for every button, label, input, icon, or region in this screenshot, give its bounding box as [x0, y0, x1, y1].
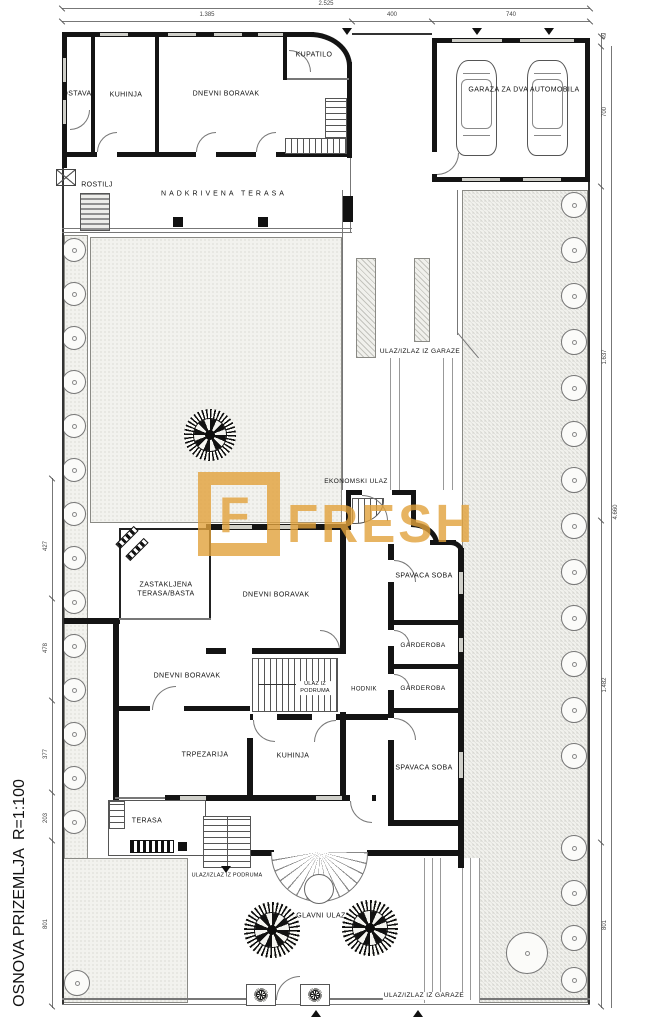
house-wall	[340, 712, 346, 800]
dim-label: 203	[43, 813, 49, 823]
tree-bush	[561, 697, 587, 723]
room-label-dnevni-2: DNEVNI BORAVAK	[154, 673, 221, 682]
room-label-garderoba-1: GARDEROBA	[400, 642, 445, 650]
terasa-planter-bar	[130, 840, 174, 853]
site-boundary-right	[588, 182, 590, 1004]
dim-label: 49	[602, 33, 608, 40]
gate-marker	[342, 28, 352, 35]
dim-line	[52, 478, 53, 1008]
room-label-zastakljena-terasa: ZASTAKLJENA TERASA/BASTA	[134, 581, 198, 599]
window-gap	[63, 58, 66, 82]
driveway-edge	[342, 190, 343, 490]
garage-door-gap	[452, 39, 502, 42]
site-label-garage-exit-bottom: ULAZ/IZLAZ IZ GARAZE	[383, 992, 465, 1000]
window-line	[115, 797, 165, 799]
dim-label: 1.482	[602, 677, 608, 692]
dim-line	[62, 8, 590, 9]
big-tree	[506, 932, 548, 974]
tree-bush	[62, 810, 86, 834]
guesthouse-partition	[283, 32, 287, 80]
room-label-kuhinja-gh: KUHINJA	[110, 92, 143, 101]
tree-bush	[561, 237, 587, 263]
fresh-logo-letter: F	[219, 486, 250, 544]
dim-label: 1.637	[602, 349, 608, 364]
window-gap	[214, 33, 242, 36]
wing-wall	[394, 708, 458, 713]
kupatilo-wall	[287, 78, 349, 80]
walk-line	[399, 358, 400, 490]
terasa-post	[178, 842, 187, 851]
room-label-garaza: GARAZA ZA DVA AUTOMOBILA	[468, 87, 579, 96]
garden-wall	[64, 618, 120, 624]
room-label-kuhinja: KUHINJA	[277, 753, 310, 762]
guesthouse-rounded-corner	[310, 32, 352, 66]
tree-bush	[62, 590, 86, 614]
dim-line	[62, 21, 590, 22]
tree-bush	[62, 634, 86, 658]
room-label-nadkrivena-terasa: NADKRIVENA TERASA	[161, 191, 287, 200]
window-gap	[462, 178, 500, 181]
door-arc	[350, 801, 372, 823]
door-arc	[196, 132, 216, 152]
room-label-terasa: TERASA	[132, 818, 162, 827]
garage-door-gap	[520, 39, 574, 42]
tree-bush	[62, 370, 86, 394]
dim-label: 801	[602, 920, 608, 930]
grill-strip	[80, 193, 110, 231]
planter-plant-icon	[254, 988, 268, 1002]
walk-line	[443, 358, 444, 490]
site-label-garage-exit-top: ULAZ/IZLAZ IZ GARAZE	[379, 348, 461, 356]
ramp-line	[470, 858, 471, 1000]
wing-wall	[394, 620, 458, 625]
door-gap	[196, 152, 216, 157]
site-boundary-left	[62, 168, 64, 1004]
site-label-glavni-ulaz: GLAVNI ULAZ	[296, 913, 345, 922]
walkway-pad	[414, 258, 430, 342]
tree-bush	[561, 605, 587, 631]
tree-bush	[561, 880, 587, 906]
dim-label: 478	[43, 643, 49, 653]
grill-box	[56, 169, 76, 186]
planter-plant-icon	[308, 988, 322, 1002]
window-line	[119, 618, 211, 620]
door-arc	[152, 686, 176, 710]
tree-bush	[561, 192, 587, 218]
door-arc	[437, 153, 459, 175]
tree-bush	[62, 282, 86, 306]
door-gap	[312, 714, 336, 720]
garage-door-marker	[544, 28, 554, 35]
fresh-logo-icon: F	[198, 472, 280, 556]
wing-wall	[394, 664, 458, 669]
ramp-line	[440, 858, 441, 1000]
room-label-dnevni-1: DNEVNI BORAVAK	[243, 592, 310, 601]
dim-label: 1.385	[199, 12, 214, 18]
window-gap	[168, 33, 196, 36]
terasa-steps	[109, 801, 125, 829]
tree-bush	[561, 967, 587, 993]
tree-bush	[561, 743, 587, 769]
door-arc	[97, 132, 117, 152]
wing-wall	[388, 820, 464, 826]
guesthouse-wall	[347, 62, 352, 158]
gate-marker	[311, 1010, 321, 1017]
dim-label: 740	[506, 12, 516, 18]
house-wall	[184, 706, 250, 711]
floor-plan-sheet: OSTAVA KUHINJA DNEVNI BORAVAK KUPATILO R…	[0, 0, 657, 1024]
tree-bush	[561, 835, 587, 861]
driveway-edge	[457, 190, 458, 335]
gate-marker	[413, 1010, 423, 1017]
column	[343, 196, 353, 222]
dim-label: 700	[602, 107, 608, 117]
window-gap	[258, 33, 286, 36]
door-arc	[253, 720, 275, 742]
room-label-ostava: OSTAVA	[62, 91, 91, 100]
dim-label: 427	[43, 541, 49, 551]
fresh-brand-text: FRESH	[287, 497, 475, 551]
tree-bush	[64, 970, 90, 996]
room-label-hodnik: HODNIK	[351, 686, 377, 694]
tree-bush	[561, 559, 587, 585]
tree-bush	[62, 414, 86, 438]
window-gap	[459, 638, 463, 652]
door-arc	[70, 110, 90, 130]
tree-bush	[561, 329, 587, 355]
car-icon	[527, 60, 568, 156]
dim-label: 801	[43, 919, 49, 929]
tree-bush	[561, 651, 587, 677]
room-label-ulaz-iz-podruma: ULAZ IZ PODRUMA	[296, 681, 334, 695]
ramp-line	[432, 858, 433, 1000]
house-wall	[367, 850, 458, 856]
window-gap	[100, 33, 128, 36]
garage-wall	[585, 38, 590, 182]
ornamental-tree-icon	[244, 902, 300, 958]
door-arc	[314, 720, 336, 742]
tree-bush	[561, 421, 587, 447]
window-gap	[316, 796, 342, 800]
house-wall	[113, 618, 119, 814]
site-boundary-top-gap	[352, 33, 432, 35]
door-gap	[226, 648, 252, 654]
house-wall	[247, 738, 253, 800]
site-label-podrum-exit: ULAZ/IZLAZ IZ PODRUMA	[192, 873, 263, 880]
garage-door-marker	[472, 28, 482, 35]
dim-label: 377	[43, 749, 49, 759]
entrance-landing-circle	[304, 874, 334, 904]
room-label-kupatilo: KUPATILO	[296, 52, 333, 61]
ornamental-tree-icon	[342, 900, 398, 956]
site-label-ekonomski-ulaz: EKONOMSKI ULAZ	[324, 478, 387, 486]
guesthouse-partition	[155, 32, 159, 152]
window-gap	[459, 752, 463, 778]
door-arc	[394, 718, 416, 740]
walk-line	[390, 358, 391, 490]
dim-label: 400	[387, 12, 397, 18]
tree-bush	[62, 458, 86, 482]
tree-bush	[561, 925, 587, 951]
tree-bush	[561, 283, 587, 309]
door-arc	[320, 630, 340, 650]
room-label-spavaca-2: SPAVACA SOBA	[395, 765, 452, 774]
room-label-dnevni-gh: DNEVNI BORAVAK	[193, 91, 260, 100]
tree-bush	[62, 238, 86, 262]
walk-line	[452, 358, 453, 490]
dim-label: 2.525	[318, 1, 333, 7]
tree-bush	[62, 326, 86, 350]
garage-wall	[432, 177, 590, 182]
ramp-line	[462, 858, 463, 1000]
tree-bush	[62, 678, 86, 702]
gate-door-arc	[276, 976, 300, 1000]
stairs	[325, 98, 347, 138]
stair-rail	[227, 816, 228, 868]
column	[258, 217, 268, 227]
tree-bush	[561, 467, 587, 493]
door-arc	[256, 132, 276, 152]
car-icon	[456, 60, 497, 156]
terrace-edge	[62, 232, 352, 233]
stairs	[285, 138, 347, 154]
tree-bush	[561, 375, 587, 401]
room-label-rostilj: ROSTILJ	[81, 182, 113, 191]
tree-bush	[62, 766, 86, 790]
tree-bush	[62, 546, 86, 570]
window-gap	[459, 572, 463, 594]
house-wall	[113, 706, 150, 711]
door-gap	[256, 152, 276, 157]
tree-bush	[561, 513, 587, 539]
dim-label: 4.660	[613, 504, 619, 519]
window-gap	[523, 178, 561, 181]
column	[173, 217, 183, 227]
dim-line	[611, 46, 612, 1008]
walkway-pad	[356, 258, 376, 358]
fence-line	[62, 998, 276, 1000]
tree-bush	[62, 502, 86, 526]
door-gap	[97, 152, 117, 157]
room-label-trpezarija: TRPEZARIJA	[182, 752, 229, 761]
tree-bush	[62, 722, 86, 746]
room-label-spavaca-1: SPAVACA SOBA	[395, 573, 452, 582]
ornamental-tree-icon	[184, 409, 236, 461]
fence-line	[478, 998, 590, 1000]
room-label-garderoba-2: GARDEROBA	[400, 685, 445, 693]
window-gap	[63, 100, 66, 124]
drawing-title: OSNOVA PRIZEMLJA R=1:100	[11, 763, 33, 1023]
